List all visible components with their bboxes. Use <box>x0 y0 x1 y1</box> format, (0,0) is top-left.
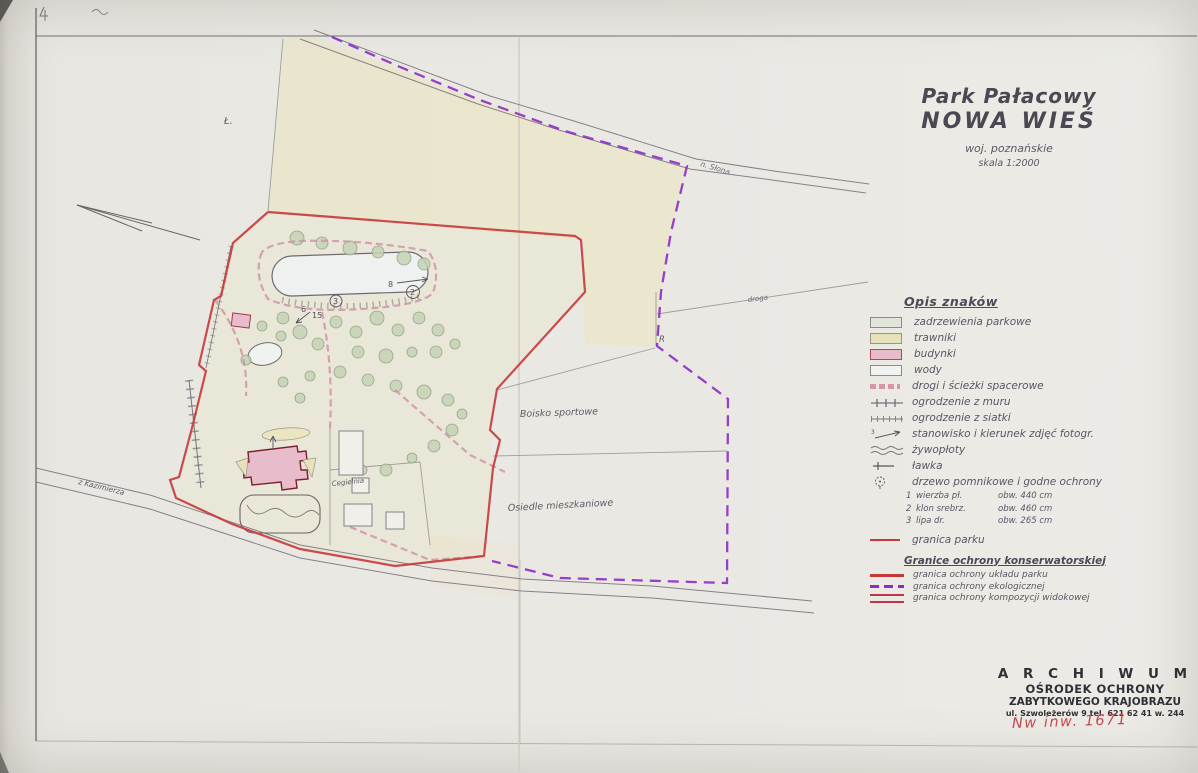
tree-number: 2 <box>410 288 415 297</box>
legend: Opis znaków zadrzewienia parkowe trawnik… <box>870 294 1180 604</box>
legend-item-lawns: trawniki <box>870 330 1180 346</box>
road-bottom-label: z Kazimierza <box>77 477 126 497</box>
title-block: Park Pałacowy NOWA WIEŚ woj. poznańskie … <box>896 84 1122 169</box>
water-swatch <box>870 365 902 376</box>
tree-number: 3 <box>333 297 338 306</box>
legend-item-paths: drogi i ścieżki spacerowe <box>870 378 1180 394</box>
building-swatch <box>870 349 902 360</box>
svg-text:3: 3 <box>871 429 875 436</box>
map-sheet: n. Słona droga z Kazimierza Boisko sport… <box>0 0 1198 773</box>
legend-item-layout-boundary: granica ochrony układu parku <box>870 570 1180 582</box>
map-title-line1: Park Pałacowy <box>896 84 1122 108</box>
sports-field-label: Boisko sportowe <box>520 406 599 420</box>
legend-item-park-boundary: granica parku <box>870 532 1180 548</box>
photo-station-icon: 3 <box>870 428 904 441</box>
map-region: woj. poznańskie <box>896 142 1122 155</box>
hedge-icon <box>870 444 904 457</box>
path-swatch <box>870 384 900 389</box>
bench-icon <box>870 460 904 473</box>
north-arrow-icon <box>77 205 200 240</box>
tree-number: 8 <box>388 280 393 289</box>
monument-tree-entry: 3 lipa dr. obw. 265 cm <box>906 515 1180 528</box>
legend-item-hedges: żywopłoty <box>870 442 1180 458</box>
map-scale: skala 1:2000 <box>896 158 1122 169</box>
road-right-label: droga <box>747 294 768 304</box>
legend-item-wall-fence: ogrodzenie z muru <box>870 394 1180 410</box>
eco-boundary-swatch <box>870 585 904 588</box>
field-mark-label: R <box>659 335 665 345</box>
monument-tree-entry: 2 klon srebrz. obw. 460 cm <box>906 503 1180 516</box>
meadow-mark-label: Ł. <box>223 116 233 127</box>
park-boundary-swatch <box>870 539 900 541</box>
view-boundary-swatch <box>870 594 904 603</box>
legend-item-mesh-fence: ogrodzenie z siatki <box>870 410 1180 426</box>
monument-tree-icon <box>870 476 904 489</box>
legend-item-photo-station: 3 stanowisko i kierunek zdjęć fotogr. <box>870 426 1180 442</box>
stamp-line2: OŚRODEK OCHRONY <box>990 682 1198 696</box>
tree-number: 6 <box>301 305 306 314</box>
housing-label: Osiedle mieszkaniowe <box>508 497 614 514</box>
legend-item-parkland: zadrzewienia parkowe <box>870 314 1180 330</box>
legend-item-view-boundary: granica ochrony kompozycji widokowej <box>870 593 1180 605</box>
stamp-line1: A R C H I W U M <box>990 666 1198 682</box>
conservation-boundaries-title: Granice ochrony konserwatorskiej <box>904 555 1180 567</box>
legend-item-bench: ławka <box>870 458 1180 474</box>
legend-item-eco-boundary: granica ochrony ekologicznej <box>870 581 1180 593</box>
wall-fence-icon <box>870 396 904 409</box>
mesh-fence-icon <box>870 412 904 425</box>
layout-boundary-swatch <box>870 574 904 577</box>
tree-number: 15 <box>312 311 322 320</box>
monument-tree-entry: 1 wierzba pł. obw. 440 cm <box>906 490 1180 503</box>
legend-item-monument-tree: drzewo pomnikowe i godne ochrony <box>870 474 1180 490</box>
paper-tints <box>176 38 686 600</box>
legend-item-buildings: budynki <box>870 346 1180 362</box>
lawn-swatch <box>870 333 902 344</box>
legend-item-water: wody <box>870 362 1180 378</box>
parkland-swatch <box>870 317 902 328</box>
legend-title: Opis znaków <box>904 294 1180 309</box>
archive-stamp: A R C H I W U M OŚRODEK OCHRONY ZABYTKOW… <box>990 666 1198 718</box>
map-title-line2: NOWA WIEŚ <box>896 109 1122 134</box>
stamp-line3: ZABYTKOWEGO KRAJOBRAZU <box>990 696 1198 708</box>
